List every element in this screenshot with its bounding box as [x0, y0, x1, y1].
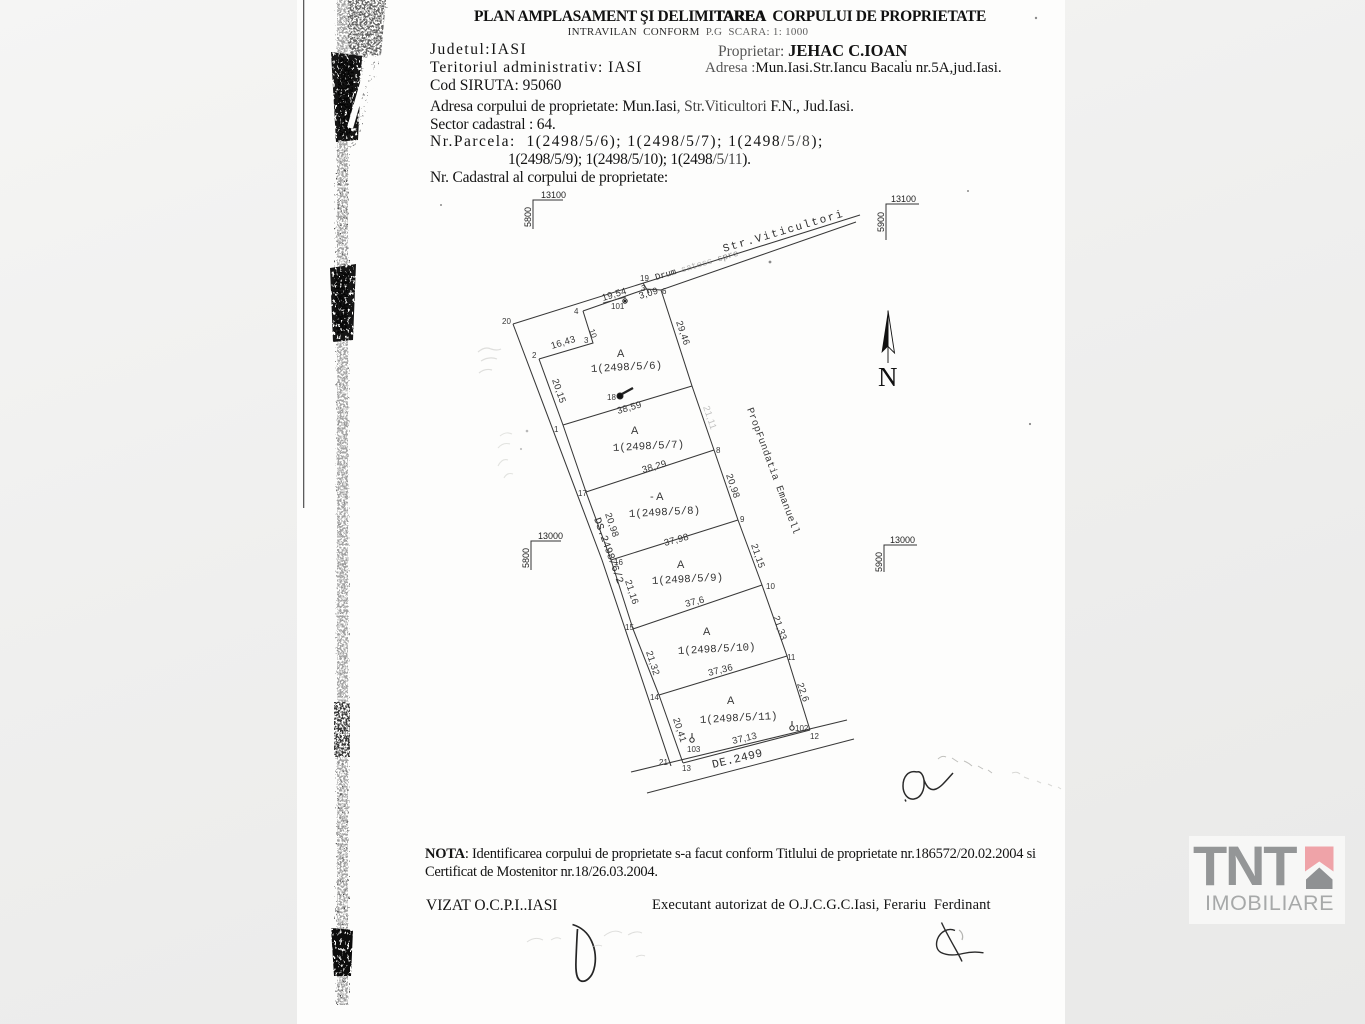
svg-text:A: A: [631, 425, 639, 437]
svg-text:17: 17: [578, 489, 587, 498]
svg-text:N: N: [878, 362, 898, 392]
svg-text:15: 15: [625, 623, 634, 632]
svg-text:102: 102: [795, 724, 809, 733]
svg-text:A: A: [617, 348, 625, 360]
svg-text:- A: - A: [650, 491, 664, 503]
svg-text:8: 8: [716, 446, 721, 455]
svg-text:10: 10: [587, 328, 599, 340]
svg-text:101: 101: [611, 302, 625, 311]
svg-text:3: 3: [584, 336, 589, 345]
svg-text:13100: 13100: [541, 190, 566, 200]
svg-text:38,59: 38,59: [616, 399, 643, 417]
svg-text:18: 18: [607, 393, 616, 402]
svg-text:21,32: 21,32: [643, 650, 661, 677]
svg-text:5900: 5900: [876, 212, 886, 232]
svg-text:5800: 5800: [521, 548, 531, 568]
svg-text:13000: 13000: [538, 531, 563, 541]
svg-text:1(2498/5/9): 1(2498/5/9): [652, 572, 724, 588]
svg-text:A: A: [727, 695, 735, 707]
svg-text:14: 14: [650, 693, 659, 702]
svg-text:1(2498/5/11): 1(2498/5/11): [700, 711, 778, 727]
svg-text:4: 4: [574, 307, 579, 316]
svg-text:1(2498/5/10): 1(2498/5/10): [678, 642, 756, 658]
svg-text:9: 9: [740, 515, 745, 524]
svg-text:20,41: 20,41: [670, 717, 688, 744]
svg-text:10: 10: [766, 582, 775, 591]
svg-text:13000: 13000: [890, 535, 915, 545]
svg-text:5800: 5800: [523, 207, 533, 227]
svg-text:20: 20: [502, 317, 511, 326]
svg-text:12: 12: [810, 732, 819, 741]
svg-text:37,98: 37,98: [663, 532, 690, 549]
svg-text:21,33: 21,33: [770, 614, 789, 641]
svg-text:A: A: [703, 626, 711, 638]
svg-text:38,29: 38,29: [641, 458, 668, 476]
svg-text:PropFundatia Emanuell: PropFundatia Emanuell: [743, 406, 801, 536]
svg-text:2: 2: [532, 351, 537, 360]
svg-text:20,15: 20,15: [549, 377, 568, 404]
svg-text:1(2498/5/7): 1(2498/5/7): [613, 439, 685, 455]
svg-text:21: 21: [659, 758, 668, 767]
svg-text:13: 13: [682, 764, 691, 773]
svg-text:3: 3: [641, 284, 646, 293]
svg-text:22,6: 22,6: [794, 681, 811, 703]
svg-text:29,46: 29,46: [673, 319, 692, 346]
svg-text:37,6: 37,6: [684, 594, 706, 609]
svg-text:19: 19: [640, 274, 649, 283]
svg-text:13100: 13100: [891, 194, 916, 204]
svg-text:A: A: [677, 559, 685, 571]
svg-text:5900: 5900: [874, 552, 884, 572]
svg-text:103: 103: [687, 745, 701, 754]
svg-text:1: 1: [554, 425, 559, 434]
svg-text:1(2498/5/8): 1(2498/5/8): [629, 505, 701, 521]
svg-text:11: 11: [787, 653, 796, 662]
svg-text:1(2498/5/6): 1(2498/5/6): [591, 360, 663, 376]
svg-text:6: 6: [662, 287, 667, 296]
